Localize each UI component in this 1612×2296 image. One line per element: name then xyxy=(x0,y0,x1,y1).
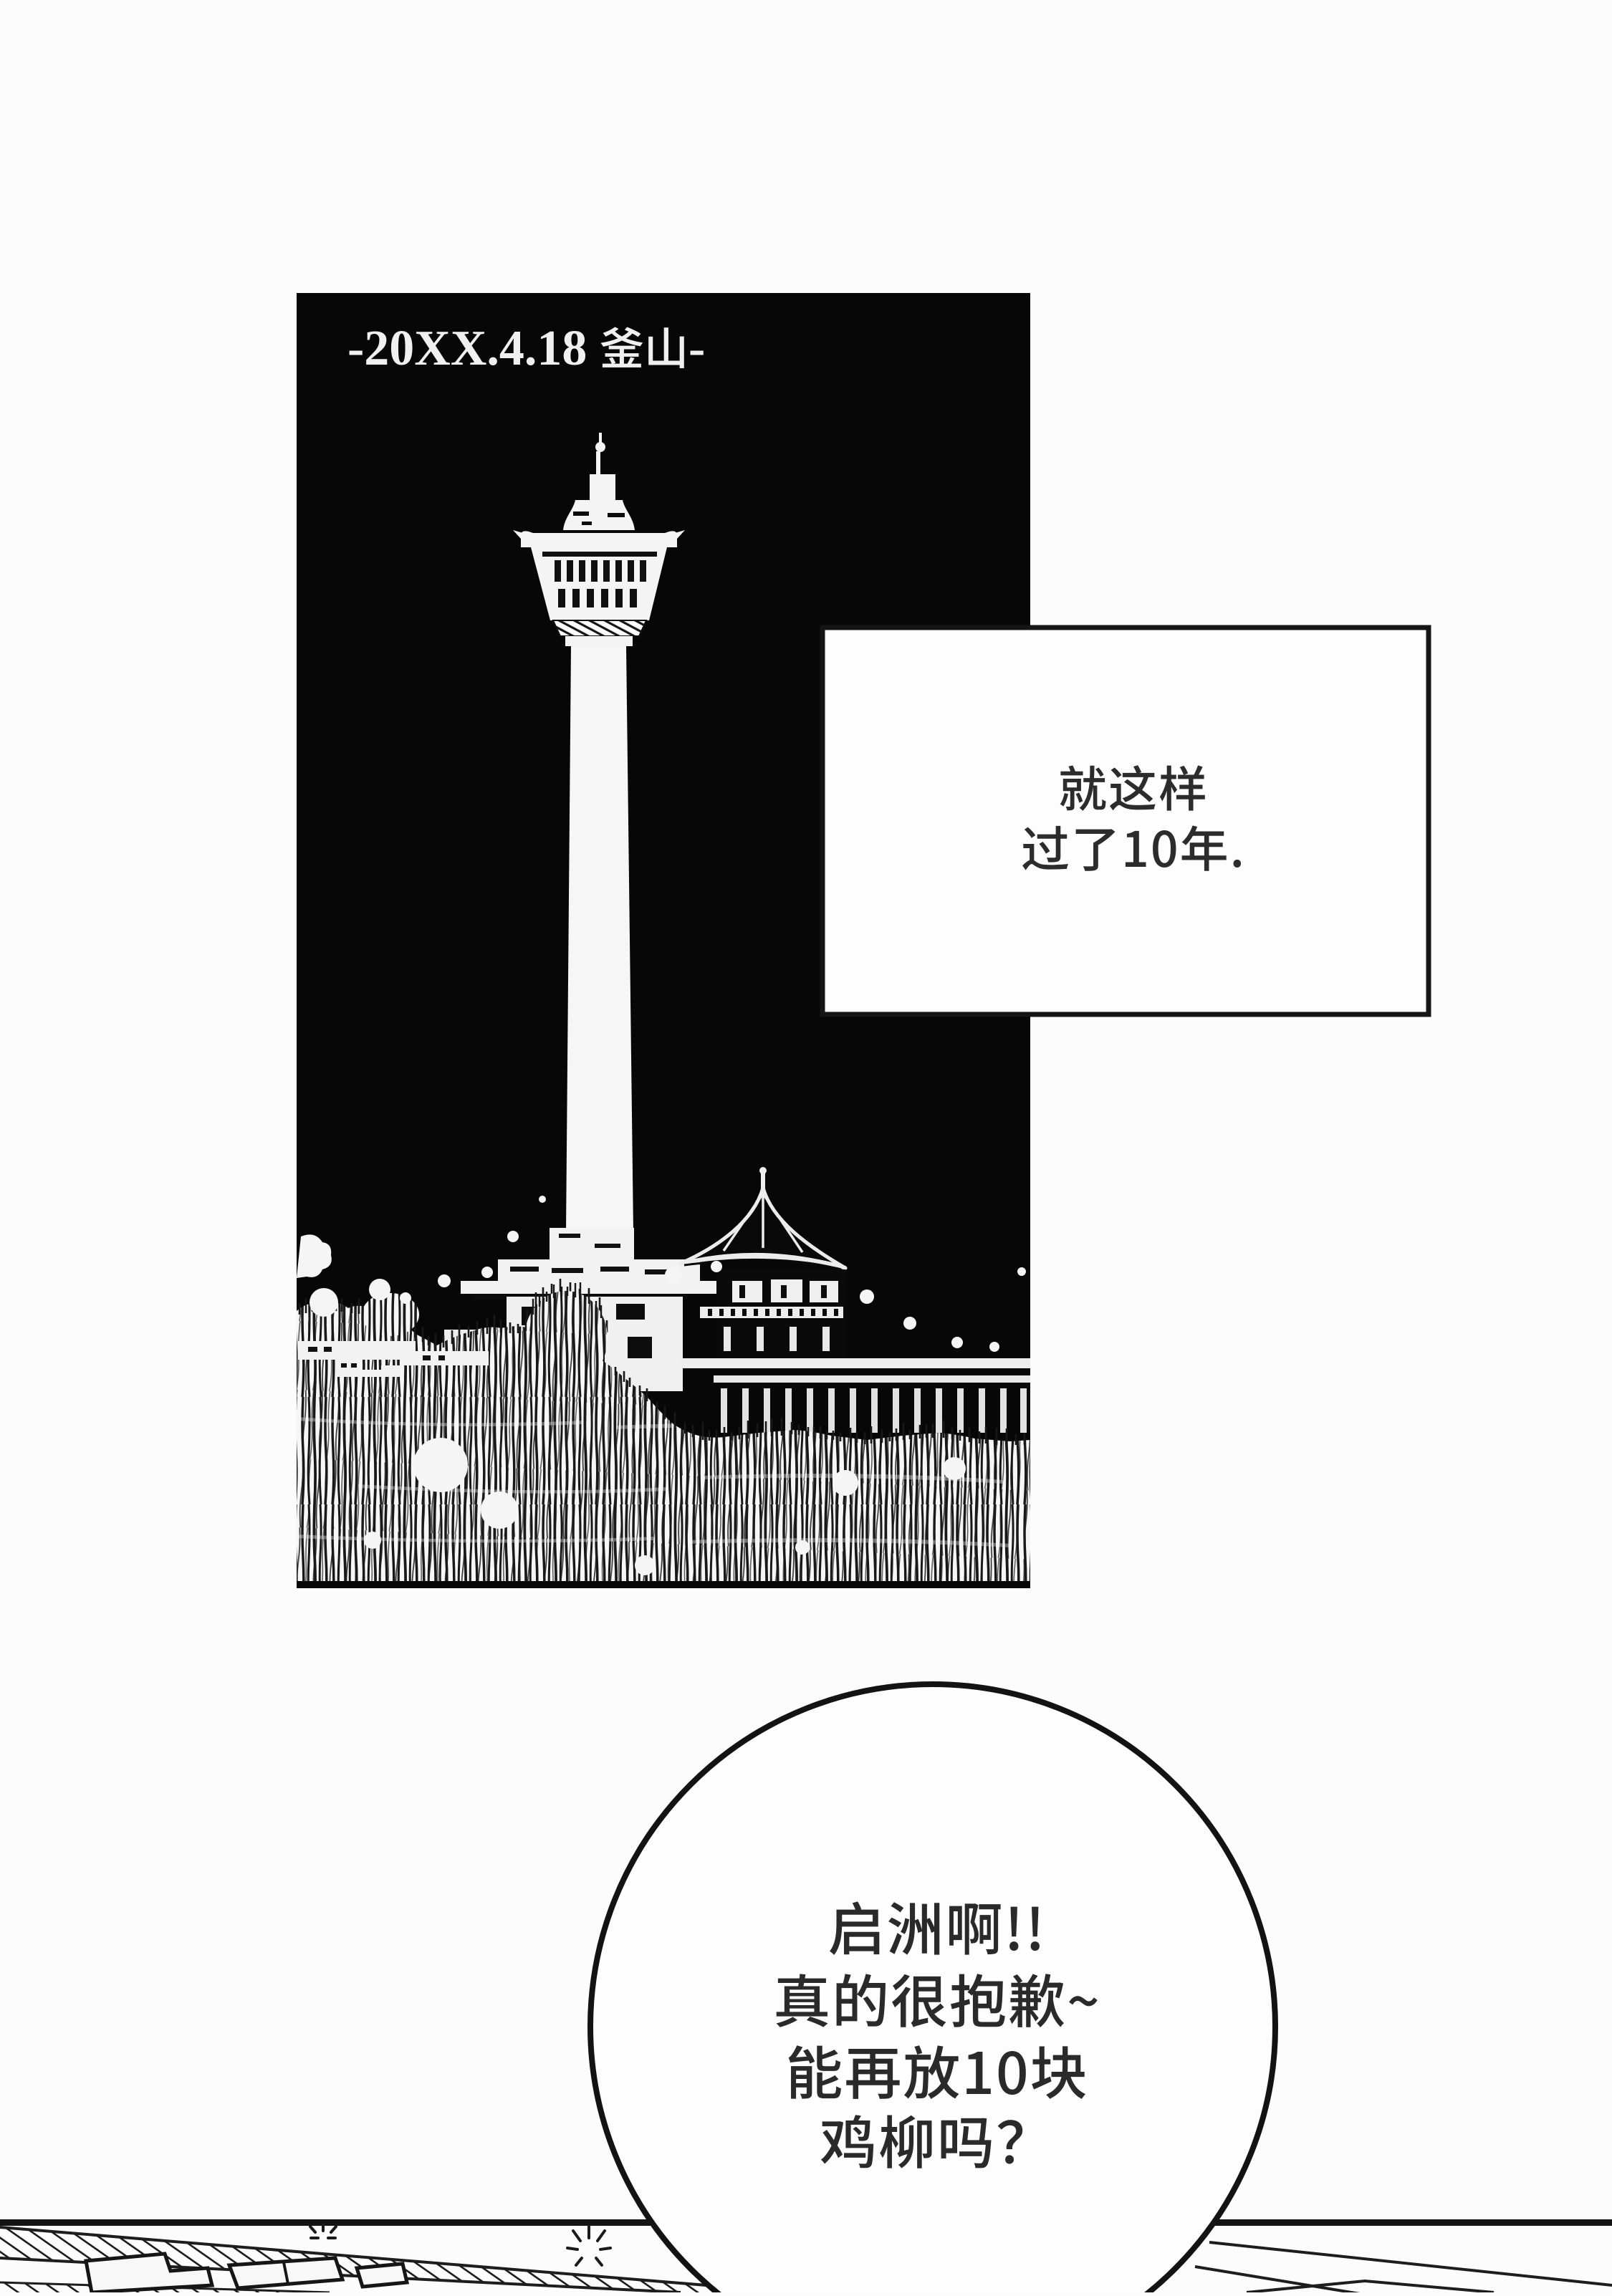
svg-text:启洲啊!!: 启洲啊!! xyxy=(828,1884,1047,1967)
svg-text:鸡柳吗？: 鸡柳吗？ xyxy=(820,2098,1055,2181)
svg-text:真的很抱歉~: 真的很抱歉~ xyxy=(773,1956,1101,2040)
svg-text:-20XX.4.18 釜山-: -20XX.4.18 釜山- xyxy=(347,313,705,378)
svg-text:过了10年.: 过了10年. xyxy=(1021,810,1246,881)
